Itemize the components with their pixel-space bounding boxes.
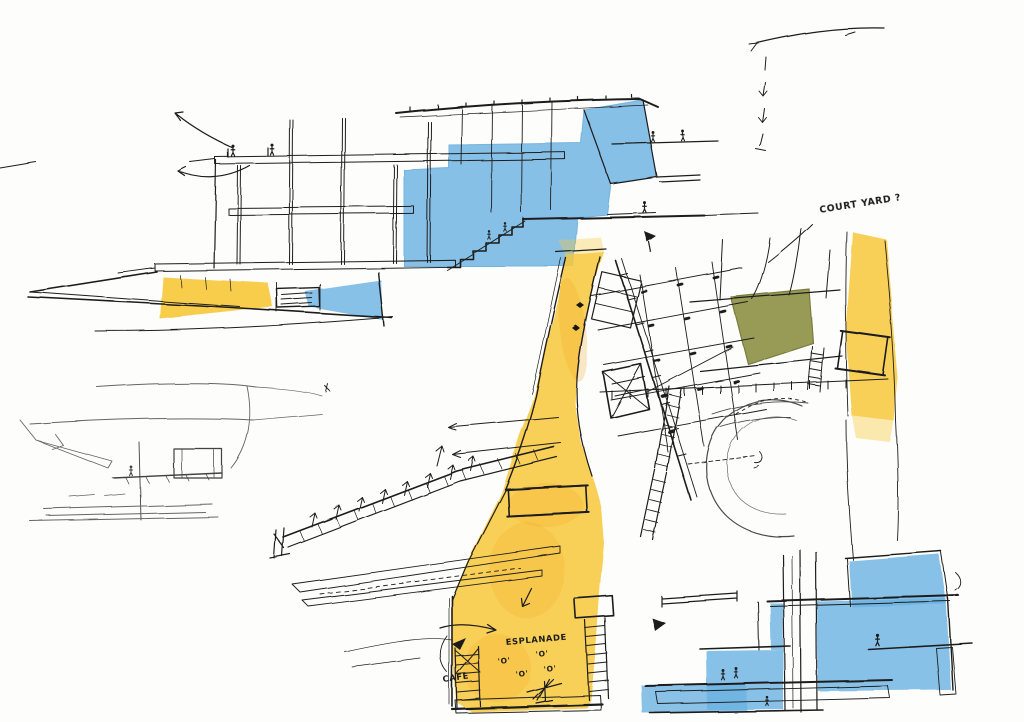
sketch-page: COURT YARD ? ESPLANADE CAFE 'O' 'O' 'O' …	[0, 0, 1024, 722]
lower-blue-main-fill	[817, 598, 951, 691]
table-mark: 'O'	[497, 656, 511, 666]
sketch-canvas: COURT YARD ? ESPLANADE CAFE 'O' 'O' 'O' …	[0, 0, 1024, 722]
table-mark: 'O'	[515, 669, 529, 679]
table-mark: 'O'	[535, 649, 549, 659]
table-mark: 'O'	[543, 664, 557, 674]
lower-blue-sliver-fill	[770, 603, 783, 650]
esplanade-shading	[507, 483, 583, 527]
esplanade-fade-top	[558, 237, 604, 255]
